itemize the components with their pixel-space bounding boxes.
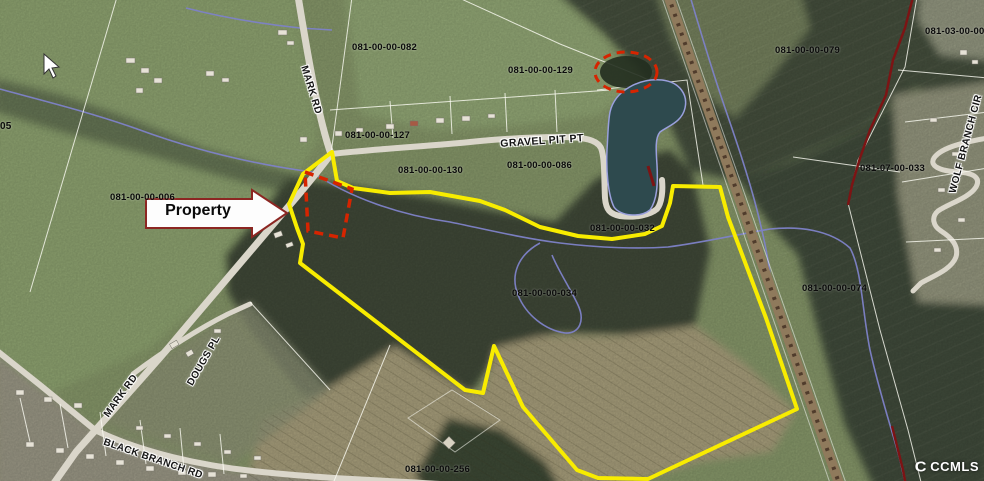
property-callout-label: Property: [147, 202, 249, 220]
parcel-label-079: 081-00-00-079: [775, 45, 840, 56]
parcel-label-129: 081-00-00-129: [508, 65, 573, 76]
aerial-map[interactable]: 081-00-00-006 081-00-00-082 081-00-00-12…: [0, 0, 984, 481]
parcel-label-256: 081-00-00-256: [405, 464, 470, 475]
parcel-label-032: 081-00-00-032: [590, 223, 655, 234]
parcel-label-edge-05: 05: [0, 121, 12, 132]
parcel-label-086: 081-00-00-086: [507, 160, 572, 171]
parcel-label-034: 081-00-00-034: [512, 288, 577, 299]
watermark-text: CCMLS: [930, 459, 979, 474]
parcel-label-130: 081-00-00-130: [398, 165, 463, 176]
watermark: CCCMLS: [916, 459, 979, 474]
ccmls-logo-icon: C: [915, 458, 927, 475]
parcel-label-033: 081-07-00-033: [860, 163, 925, 174]
map-graphics: [0, 0, 984, 481]
parcel-label-003: 081-03-00-003: [925, 26, 984, 37]
parcel-label-127: 081-00-00-127: [345, 130, 410, 141]
parcel-label-082: 081-00-00-082: [352, 42, 417, 53]
parcel-label-074: 081-00-00-074: [802, 283, 867, 294]
